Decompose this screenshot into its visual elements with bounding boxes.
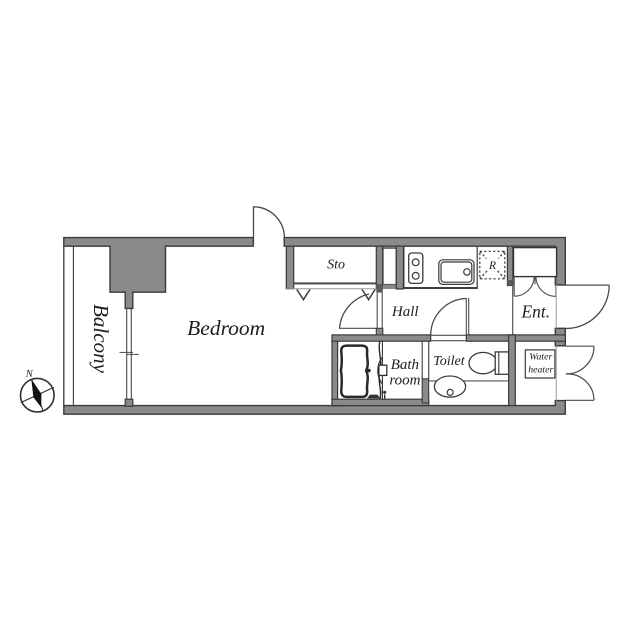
svg-text:Bath: Bath xyxy=(391,357,419,373)
svg-text:Sto: Sto xyxy=(327,258,345,273)
svg-text:Water: Water xyxy=(529,352,552,363)
svg-text:room: room xyxy=(389,373,420,389)
svg-text:Hall: Hall xyxy=(391,304,419,320)
svg-text:N: N xyxy=(25,369,34,380)
svg-text:R: R xyxy=(488,260,496,272)
svg-text:Bedroom: Bedroom xyxy=(187,316,265,340)
svg-text:heater: heater xyxy=(528,365,553,376)
svg-text:Balcony: Balcony xyxy=(89,304,113,373)
svg-text:Ent.: Ent. xyxy=(520,302,550,322)
svg-text:Toilet: Toilet xyxy=(433,354,465,369)
